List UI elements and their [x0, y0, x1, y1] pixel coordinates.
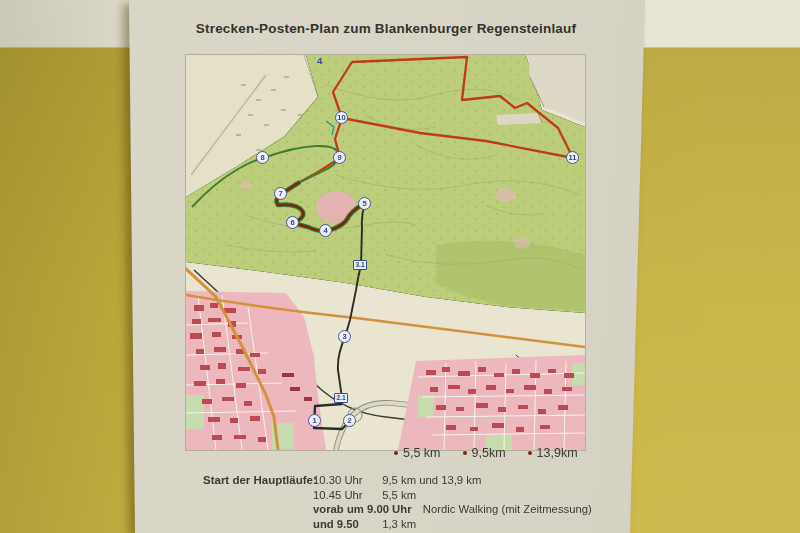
checkpoint-marker-4: 4 [319, 224, 332, 237]
map-grid-number: 4 [317, 55, 322, 66]
start-row-1: 10.30 Uhr 9,5 km und 13,9 km [313, 474, 592, 489]
course-map [186, 55, 585, 450]
start-note: Nordic Walking (mit Zeitmessung) [423, 503, 592, 515]
legend-label: 13,9km [537, 446, 578, 460]
route-legend: 5,5 km 9,5km 13,9km [394, 446, 578, 460]
start-info-heading: Start der Hauptläufe: [203, 474, 317, 486]
legend-item-5-5km: 5,5 km [394, 446, 441, 460]
checkpoint-marker-6: 6 [286, 216, 299, 229]
legend-label: 5,5 km [403, 446, 441, 460]
checkpoint-marker-9: 9 [333, 151, 346, 164]
legend-dot-icon [463, 451, 467, 455]
checkpoint-marker-3: 3 [338, 330, 351, 343]
start-time: 10.45 Uhr [313, 489, 379, 501]
start-info-rows: 10.30 Uhr 9,5 km und 13,9 km 10.45 Uhr 5… [313, 474, 592, 532]
checkpoint-marker-8: 8 [256, 151, 269, 164]
checkpoint-marker-1: 1 [308, 414, 321, 427]
start-distance: 5,5 km [382, 489, 416, 501]
map-town-right [398, 355, 585, 450]
checkpoint-marker-10: 10 [335, 111, 348, 124]
poster-title: Strecken-Posten-Plan zum Blankenburger R… [176, 21, 596, 36]
photo-scene: Strecken-Posten-Plan zum Blankenburger R… [0, 0, 800, 533]
start-time: vorab um 9.00 Uhr [313, 503, 412, 515]
legend-item-13-9km: 13,9km [528, 446, 578, 460]
start-distance: 1,3 km [382, 518, 416, 530]
start-time: 10.30 Uhr [313, 474, 379, 486]
poster: Strecken-Posten-Plan zum Blankenburger R… [0, 0, 800, 533]
checkpoint-marker-7: 7 [274, 187, 287, 200]
start-distance: 9,5 km und 13,9 km [382, 474, 481, 486]
distance-marker-2-1: 2.1 [334, 393, 348, 403]
start-row-2: 10.45 Uhr 5,5 km [313, 489, 592, 504]
legend-label: 9,5km [472, 446, 506, 460]
distance-marker-3-1: 3.1 [353, 260, 367, 270]
start-row-3: vorab um 9.00 Uhr Nordic Walking (mit Ze… [313, 503, 592, 518]
start-row-4: und 9.50 1,3 km [313, 518, 592, 533]
poster-shadow: Strecken-Posten-Plan zum Blankenburger R… [0, 0, 800, 533]
legend-dot-icon [394, 451, 398, 455]
start-time: und 9.50 [313, 518, 371, 530]
checkpoint-marker-2: 2 [343, 414, 356, 427]
legend-dot-icon [528, 451, 532, 455]
legend-item-9-5km: 9,5km [463, 446, 506, 460]
checkpoint-marker-5: 5 [358, 197, 371, 210]
checkpoint-marker-11: 11 [566, 151, 579, 164]
